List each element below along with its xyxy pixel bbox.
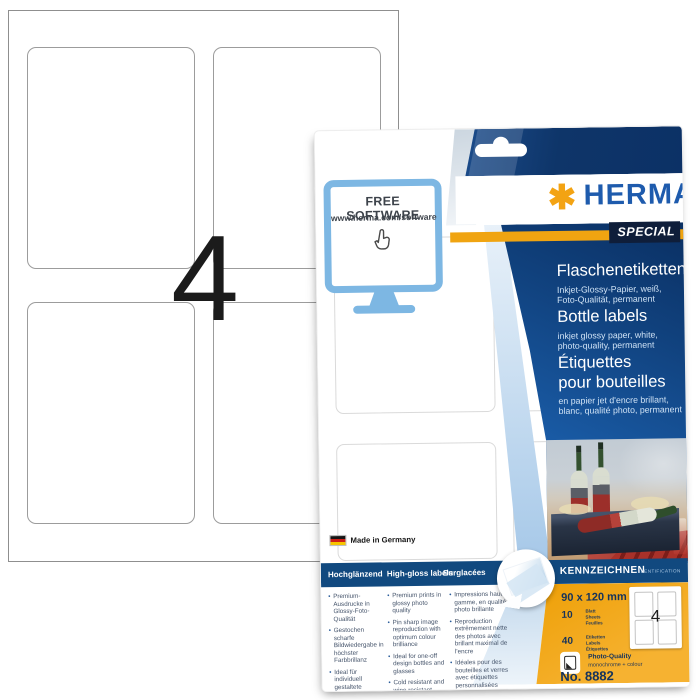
category-label: KENNZEICHNEN bbox=[560, 565, 646, 577]
bullet-item: Reproduction extrêmement nette des photo… bbox=[450, 617, 517, 656]
feature-header-de: Hochglänzend bbox=[328, 569, 383, 579]
bullet-item: Gestochen scharfe Bildwiedergabe in höch… bbox=[329, 627, 387, 666]
orange-stripe-end bbox=[680, 229, 685, 239]
spec-label-units: Etiketten Labels Étiquettes bbox=[586, 634, 608, 652]
bullet-item: Pin sharp image reproduction with optimu… bbox=[388, 618, 446, 649]
spec-sheet-count: 10 bbox=[561, 610, 572, 621]
product-title-en: Bottle labels bbox=[557, 307, 647, 328]
bullet-item: Premium-Ausdrucke in Glossy-Foto-Qualitä… bbox=[328, 592, 385, 623]
photo-highlight bbox=[618, 438, 690, 499]
package: ✱ HERMA SPECIAL Flaschenetiketten Inkjet… bbox=[314, 125, 691, 692]
bullet-item: Ideal für individuell gestaltete Flasche… bbox=[329, 668, 387, 692]
free-software-badge: FREE SOFTWARE www.herma.com/software bbox=[323, 179, 443, 294]
germany-flag-icon bbox=[329, 535, 346, 546]
feature-list-en: Premium prints in glossy photo quality P… bbox=[387, 592, 446, 693]
wine-bottle bbox=[592, 442, 610, 514]
bullet-item: Premium prints in glossy photo quality bbox=[387, 592, 445, 615]
category-sublabel: IDENTIFICATION bbox=[639, 568, 681, 574]
special-badge: SPECIAL bbox=[609, 221, 680, 243]
herma-asterisk-icon: ✱ bbox=[547, 181, 576, 215]
product-shot: 4 ✱ HERMA SPECIAL Flaschenetiketten Inkj… bbox=[0, 0, 700, 700]
spec-size: 90 x 120 mm bbox=[561, 591, 627, 604]
labels-per-sheet-number: 4 bbox=[149, 217, 261, 339]
product-subtitle-de: Foto-Qualität, permanent bbox=[557, 294, 655, 306]
product-subtitle-en: photo-quality, permanent bbox=[558, 340, 655, 352]
article-number: No. 8882 bbox=[560, 668, 614, 684]
wine-bottles-photo bbox=[546, 438, 690, 563]
photo-quality-title: Photo-Quality bbox=[588, 653, 631, 661]
product-subtitle-fr: blanc, qualité photo, permanent bbox=[559, 404, 682, 416]
product-title-de: Flaschenetiketten bbox=[557, 260, 687, 282]
mini-labels-per-sheet-number: 4 bbox=[629, 607, 681, 625]
herma-logo: HERMA bbox=[583, 180, 690, 211]
feature-list-de: Premium-Ausdrucke in Glossy-Foto-Qualitä… bbox=[328, 592, 387, 692]
feature-header-fr: Surglacées bbox=[443, 568, 486, 578]
made-in-label: Made in Germany bbox=[350, 535, 415, 545]
bullet-item: Idéales pour des bouteilles et verres av… bbox=[450, 659, 516, 690]
product-title-fr: Étiquettes pour bouteilles bbox=[558, 352, 669, 393]
bullet-item: Cold resistant and wipe resistant bbox=[388, 679, 446, 692]
monitor-stand-base bbox=[353, 305, 415, 314]
bullet-item: Ideal for one-off design bottles and gla… bbox=[388, 652, 446, 675]
hand-cursor-icon bbox=[372, 228, 394, 254]
mini-sheet-diagram: 4 bbox=[629, 586, 682, 649]
spec-sheet-units: Blatt Sheets Feuilles bbox=[585, 608, 602, 626]
logo-strip: ✱ HERMA bbox=[455, 173, 685, 224]
spec-panel: 90 x 120 mm 10 Blatt Sheets Feuilles 40 … bbox=[525, 582, 690, 684]
spec-label-count: 40 bbox=[562, 636, 573, 647]
euro-hang-slot bbox=[475, 143, 527, 157]
free-software-url: www.herma.com/software bbox=[331, 212, 435, 223]
